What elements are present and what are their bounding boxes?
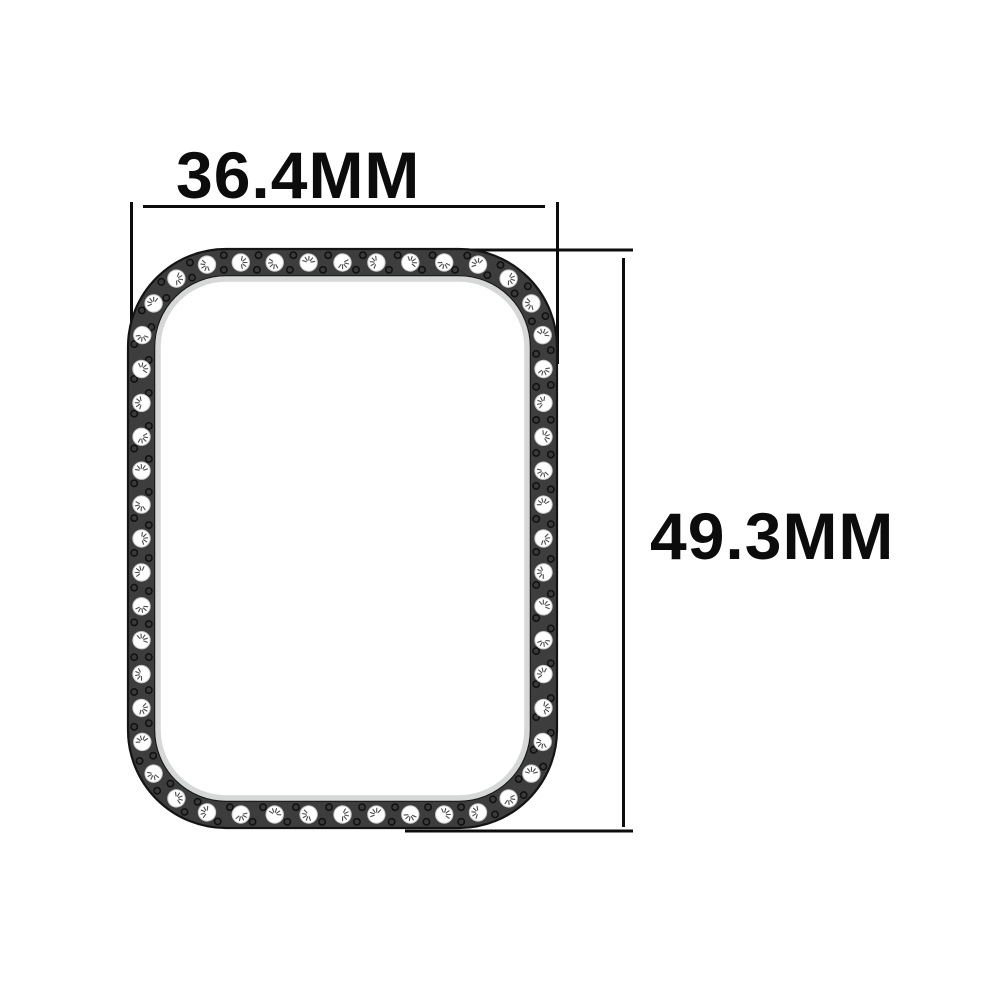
- case-inner-opening: [155, 276, 530, 801]
- stud-dot: [484, 272, 490, 278]
- stud-dot: [131, 445, 137, 451]
- stud-dot: [320, 267, 326, 273]
- stud-dot: [146, 423, 152, 429]
- stud-dot: [221, 267, 227, 273]
- stud-dot: [548, 417, 554, 423]
- stud-dot: [136, 758, 142, 764]
- stud-dot: [326, 804, 332, 810]
- stud-dot: [548, 660, 554, 666]
- stud-dot: [131, 480, 137, 486]
- diagram-scene: [0, 0, 1000, 1000]
- stud-dot: [131, 654, 137, 660]
- stud-dot: [131, 619, 137, 625]
- stud-dot: [533, 450, 539, 456]
- product-dimension-diagram: 36.4MM 49.3MM: [0, 0, 1000, 1000]
- stud-dot: [429, 252, 435, 258]
- stud-dot: [497, 262, 503, 268]
- stud-dot: [131, 550, 137, 556]
- stud-dot: [325, 252, 331, 258]
- stud-dot: [533, 549, 539, 555]
- stud-dot: [131, 724, 137, 730]
- stud-dot: [146, 489, 152, 495]
- rhinestone-gem: [523, 765, 541, 783]
- stud-dot: [131, 515, 137, 521]
- stud-dot: [131, 411, 137, 417]
- stud-dot: [260, 804, 266, 810]
- stud-dot: [529, 318, 535, 324]
- rhinestone-gem: [133, 394, 151, 412]
- stud-dot: [542, 313, 548, 319]
- rhinestone-gem: [232, 254, 249, 271]
- stud-dot: [395, 252, 401, 258]
- watch-case-ring: [128, 249, 557, 828]
- stud-dot: [227, 804, 233, 810]
- stud-dot: [511, 290, 517, 296]
- stud-dot: [548, 556, 554, 562]
- stud-dot: [548, 347, 554, 353]
- stud-dot: [548, 451, 554, 457]
- stud-dot: [146, 456, 152, 462]
- stud-dot: [492, 811, 498, 817]
- stud-dot: [255, 252, 261, 258]
- stud-dot: [533, 417, 539, 423]
- stud-dot: [458, 804, 464, 810]
- stud-dot: [146, 522, 152, 528]
- stud-dot: [548, 695, 554, 701]
- stud-dot: [131, 376, 137, 382]
- stud-dot: [525, 283, 531, 289]
- stud-dot: [548, 591, 554, 597]
- stud-dot: [464, 252, 470, 258]
- stud-dot: [548, 521, 554, 527]
- stud-dot: [533, 516, 539, 522]
- stud-dot: [221, 252, 227, 258]
- stud-dot: [146, 621, 152, 627]
- stud-dot: [520, 792, 526, 798]
- stud-dot: [189, 274, 195, 280]
- stud-dot: [533, 483, 539, 489]
- stud-dot: [425, 804, 431, 810]
- stud-dot: [533, 384, 539, 390]
- stud-dot: [458, 819, 464, 825]
- stud-dot: [194, 799, 200, 805]
- stud-dot: [360, 252, 366, 258]
- stud-dot: [146, 687, 152, 693]
- stud-dot: [540, 763, 546, 769]
- stud-dot: [215, 818, 221, 824]
- stud-dot: [533, 681, 539, 687]
- stud-dot: [452, 267, 458, 273]
- stud-dot: [167, 780, 173, 786]
- stud-dot: [293, 804, 299, 810]
- stud-dot: [284, 819, 290, 825]
- stud-dot: [359, 804, 365, 810]
- stud-dot: [392, 804, 398, 810]
- stud-dot: [423, 819, 429, 825]
- stud-dot: [388, 819, 394, 825]
- stud-dot: [158, 279, 164, 285]
- stud-dot: [163, 295, 169, 301]
- stud-dot: [548, 625, 554, 631]
- stud-dot: [354, 819, 360, 825]
- stud-dot: [146, 720, 152, 726]
- stud-dot: [146, 654, 152, 660]
- rhinestone-gem: [299, 253, 318, 272]
- rhinestone-gem: [534, 699, 552, 717]
- stud-dot: [187, 259, 193, 265]
- stud-dot: [353, 267, 359, 273]
- stud-dot: [254, 267, 260, 273]
- stud-dot: [154, 788, 160, 794]
- stud-dot: [249, 819, 255, 825]
- stud-dot: [131, 689, 137, 695]
- stud-dot: [515, 776, 521, 782]
- stud-dot: [533, 648, 539, 654]
- rhinestone-gem: [133, 462, 151, 480]
- stud-dot: [548, 382, 554, 388]
- stud-dot: [533, 351, 539, 357]
- stud-dot: [146, 555, 152, 561]
- stud-dot: [490, 796, 496, 802]
- stud-dot: [150, 752, 156, 758]
- stud-dot: [419, 267, 425, 273]
- stud-dot: [146, 588, 152, 594]
- stud-dot: [533, 582, 539, 588]
- stud-dot: [181, 809, 187, 815]
- stud-dot: [533, 615, 539, 621]
- stud-dot: [131, 584, 137, 590]
- stud-dot: [287, 267, 293, 273]
- stud-dot: [386, 267, 392, 273]
- stud-dot: [548, 486, 554, 492]
- stud-dot: [139, 307, 145, 313]
- stud-dot: [319, 819, 325, 825]
- stud-dot: [290, 252, 296, 258]
- stud-dot: [146, 390, 152, 396]
